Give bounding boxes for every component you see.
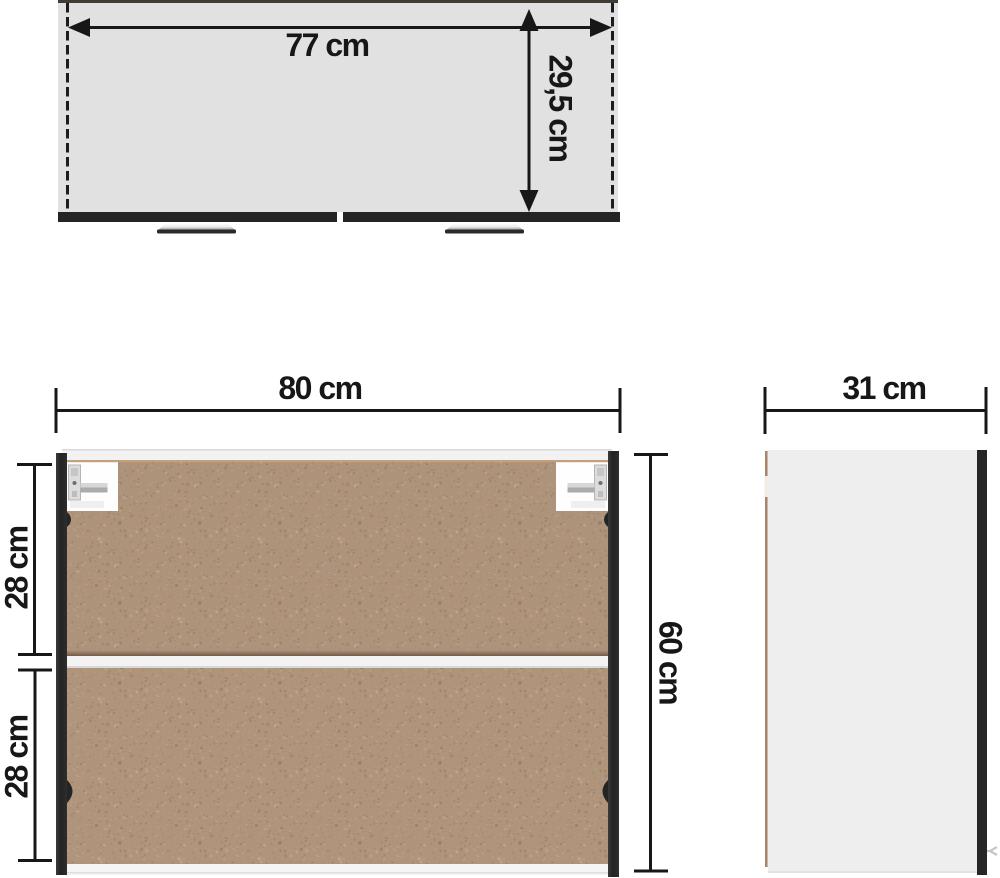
svg-text:28 cm: 28 cm bbox=[0, 715, 34, 798]
svg-text:29,5 cm: 29,5 cm bbox=[543, 55, 579, 162]
svg-text:28 cm: 28 cm bbox=[0, 526, 34, 609]
svg-text:80 cm: 80 cm bbox=[278, 370, 361, 406]
svg-text:60 cm: 60 cm bbox=[653, 621, 689, 704]
svg-text:31 cm: 31 cm bbox=[842, 370, 925, 406]
svg-text:77 cm: 77 cm bbox=[285, 27, 368, 63]
